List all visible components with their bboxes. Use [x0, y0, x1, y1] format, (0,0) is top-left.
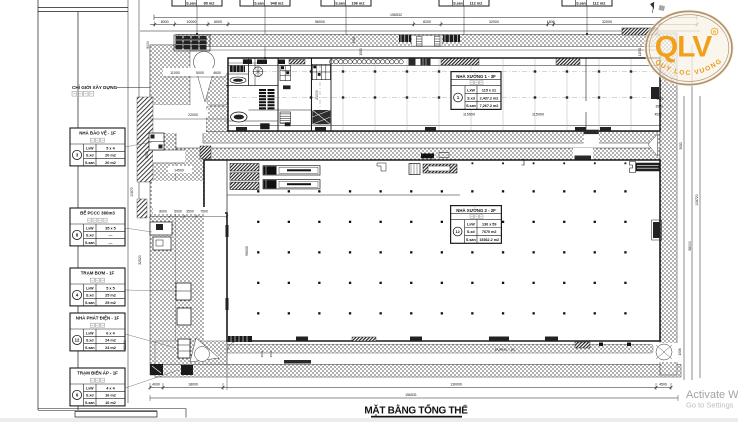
svg-text:BỂ PCCC 360m3: BỂ PCCC 360m3 [80, 210, 115, 215]
svg-text:12: 12 [455, 230, 459, 234]
svg-text:9000: 9000 [146, 41, 150, 49]
svg-text:LxW: LxW [86, 331, 94, 335]
svg-text:QLV: QLV [655, 31, 712, 64]
svg-text:Activate W: Activate W [686, 389, 738, 401]
svg-text:S.xd: S.xd [467, 96, 476, 100]
svg-text:5 x 4: 5 x 4 [106, 146, 115, 150]
svg-text:156532: 156532 [390, 13, 402, 17]
svg-text:16 m2: 16 m2 [105, 401, 116, 405]
svg-text:948 m2: 948 m2 [271, 1, 284, 5]
svg-text:S.xd: S.xd [86, 339, 94, 343]
svg-text:CHỈ GIỚI XÂY DỰNG: CHỈ GIỚI XÂY DỰNG [72, 83, 118, 90]
svg-text:10870: 10870 [130, 187, 134, 197]
svg-text:24 m2: 24 m2 [105, 346, 116, 350]
svg-text:130 x 59: 130 x 59 [482, 222, 496, 226]
svg-text:58000: 58000 [688, 241, 692, 251]
svg-text:4500: 4500 [659, 383, 667, 387]
svg-text:S.san: S.san [85, 161, 95, 165]
svg-text:20 m2: 20 m2 [105, 161, 116, 165]
svg-text:11000: 11000 [170, 71, 180, 75]
svg-text:S.xd: S.xd [467, 230, 476, 234]
svg-text:112 m2: 112 m2 [470, 1, 483, 5]
svg-text:3500: 3500 [352, 36, 356, 43]
svg-text:7670 m2: 7670 m2 [482, 230, 497, 234]
svg-text:108720: 108720 [695, 194, 699, 205]
svg-text:130000: 130000 [450, 383, 462, 387]
svg-text:ĐƯỜNG ... B2: ĐƯỜNG ... B2 [495, 347, 515, 352]
svg-text:LxW: LxW [86, 286, 94, 290]
svg-text:20 m2: 20 m2 [105, 154, 116, 158]
svg-text:NHÀ XƯỞNG 1 - 3F: NHÀ XƯỞNG 1 - 3F [456, 74, 496, 79]
svg-text:S.xd: S.xd [86, 234, 94, 238]
svg-text:32520: 32520 [138, 255, 142, 265]
svg-text:1500: 1500 [359, 48, 363, 55]
svg-text:—: — [109, 241, 113, 245]
svg-text:NHÀ PHÁT ĐIỆN - 1F: NHÀ PHÁT ĐIỆN - 1F [76, 315, 120, 320]
svg-text:—: — [109, 234, 113, 238]
svg-text:NHÀ XƯỞNG 2 - 2F: NHÀ XƯỞNG 2 - 2F [456, 208, 496, 213]
svg-text:S.san: S.san [466, 238, 477, 242]
svg-text:LxW: LxW [86, 146, 94, 150]
svg-text:S.xd: S.xd [86, 394, 94, 398]
svg-text:S.san: S.san [453, 1, 463, 5]
svg-text:S.san: S.san [85, 401, 95, 405]
svg-text:8000: 8000 [159, 210, 167, 214]
svg-text:21000: 21000 [315, 90, 319, 100]
svg-text:80 m2: 80 m2 [204, 1, 215, 5]
svg-text:35 x 5: 35 x 5 [105, 226, 116, 230]
svg-text:1800: 1800 [547, 20, 555, 24]
svg-text:LxW: LxW [467, 222, 475, 226]
svg-text:S.san: S.san [85, 241, 95, 245]
svg-text:S.san: S.san [186, 1, 196, 5]
svg-text:22000: 22000 [188, 113, 198, 117]
svg-text:112 m2: 112 m2 [593, 1, 606, 5]
svg-text:Go to Settings: Go to Settings [686, 401, 734, 410]
svg-text:24 m2: 24 m2 [105, 339, 116, 343]
svg-text:52100: 52100 [123, 340, 127, 350]
svg-text:2544: 2544 [269, 350, 273, 357]
svg-text:S.san: S.san [576, 1, 586, 5]
svg-text:12: 12 [75, 338, 80, 343]
svg-text:1906: 1906 [678, 348, 682, 355]
svg-text:14500: 14500 [174, 169, 184, 173]
svg-text:96000: 96000 [245, 246, 249, 256]
svg-text:18000: 18000 [188, 383, 198, 387]
svg-text:4000: 4000 [152, 383, 160, 387]
svg-text:196 m2: 196 m2 [352, 1, 365, 5]
svg-text:NHÀ BẢO VỆ - 1F: NHÀ BẢO VỆ - 1F [79, 130, 116, 135]
svg-text:15000: 15000 [242, 59, 252, 63]
svg-text:156531: 156531 [405, 393, 417, 397]
svg-text:3000: 3000 [679, 142, 683, 149]
svg-text:115 x 21: 115 x 21 [482, 88, 496, 92]
svg-text:25 m2: 25 m2 [105, 301, 116, 305]
svg-text:3500: 3500 [186, 210, 194, 214]
svg-text:6000: 6000 [214, 20, 222, 24]
svg-text:LxW: LxW [467, 88, 475, 92]
svg-text:32000: 32000 [602, 20, 612, 24]
svg-text:7,267.2 m2: 7,267.2 m2 [480, 104, 499, 108]
svg-text:LxW: LxW [86, 386, 94, 390]
svg-text:S.san: S.san [85, 301, 95, 305]
svg-text:11532: 11532 [638, 47, 642, 56]
svg-text:5000: 5000 [145, 151, 149, 158]
svg-text:10000: 10000 [186, 20, 196, 24]
svg-text:4 x 4: 4 x 4 [106, 386, 115, 390]
svg-text:115000: 115000 [463, 113, 475, 117]
svg-text:MẶT BẰNG TỔNG THỂ: MẶT BẰNG TỔNG THỂ [364, 404, 468, 417]
svg-text:5000: 5000 [196, 71, 204, 75]
svg-text:5000: 5000 [174, 210, 182, 214]
svg-text:5 x 5: 5 x 5 [106, 286, 114, 290]
svg-text:S.xd: S.xd [86, 154, 94, 158]
svg-text:S.san: S.san [254, 1, 264, 5]
svg-text:6 x 4: 6 x 4 [106, 331, 115, 335]
svg-text:15362.2 m2: 15362.2 m2 [479, 238, 499, 242]
svg-text:1620: 1620 [656, 97, 663, 101]
svg-text:3500: 3500 [655, 105, 662, 109]
svg-text:4600: 4600 [213, 71, 221, 75]
svg-text:32000: 32000 [489, 20, 499, 24]
svg-text:S.san: S.san [466, 104, 477, 108]
svg-text:4533: 4533 [654, 113, 661, 117]
svg-text:16 m2: 16 m2 [105, 394, 116, 398]
svg-text:3544: 3544 [260, 350, 264, 357]
svg-text:S.san: S.san [85, 346, 95, 350]
svg-text:2,437.2 m2: 2,437.2 m2 [480, 96, 499, 100]
svg-text:TRẠM BƠM - 1F: TRẠM BƠM - 1F [81, 270, 115, 275]
svg-text:115000: 115000 [532, 113, 544, 117]
svg-text:7500: 7500 [200, 210, 208, 214]
svg-text:S.san: S.san [335, 1, 345, 5]
svg-text:25 m2: 25 m2 [105, 294, 116, 298]
svg-text:6000: 6000 [161, 20, 169, 24]
svg-text:S.xd: S.xd [86, 294, 94, 298]
svg-text:TRẠM BIẾN ÁP - 1F: TRẠM BIẾN ÁP - 1F [77, 370, 118, 375]
svg-text:LxW: LxW [86, 226, 94, 230]
svg-text:8200: 8200 [423, 20, 431, 24]
svg-text:56000: 56000 [315, 20, 325, 24]
